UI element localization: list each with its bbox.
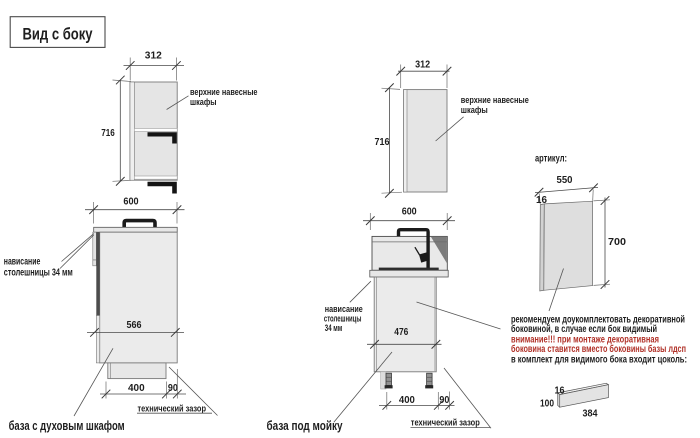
svg-text:550: 550	[557, 174, 573, 186]
svg-text:600: 600	[402, 207, 417, 218]
svg-text:400: 400	[399, 395, 415, 406]
svg-text:шкафы: шкафы	[190, 97, 217, 108]
svg-text:база под мойку: база под мойку	[267, 419, 343, 433]
svg-text:в комплект для видимого бока в: в комплект для видимого бока входит цоко…	[511, 355, 687, 366]
svg-text:476: 476	[394, 327, 408, 338]
svg-text:600: 600	[123, 196, 139, 207]
svg-text:700: 700	[608, 236, 626, 248]
svg-text:шкафы: шкафы	[461, 105, 488, 116]
svg-text:566: 566	[127, 320, 142, 331]
svg-text:400: 400	[128, 383, 145, 394]
svg-text:артикул:: артикул:	[535, 154, 567, 165]
svg-text:Вид с боку: Вид с боку	[23, 26, 94, 44]
svg-text:312: 312	[415, 60, 430, 71]
svg-text:716: 716	[375, 137, 390, 148]
svg-text:технический зазор: технический зазор	[411, 418, 480, 429]
svg-text:16: 16	[555, 385, 565, 396]
svg-text:столешницы 34 мм: столешницы 34 мм	[4, 268, 73, 279]
svg-text:312: 312	[145, 50, 162, 61]
svg-text:34 мм: 34 мм	[325, 323, 343, 334]
svg-text:384: 384	[583, 408, 598, 419]
svg-text:90: 90	[168, 383, 178, 394]
svg-text:100: 100	[540, 398, 554, 409]
svg-text:нависание: нависание	[4, 257, 41, 268]
svg-text:90: 90	[439, 395, 449, 406]
svg-text:боковина ставится вместо боков: боковина ставится вместо боковины базы л…	[511, 344, 686, 355]
svg-text:технический зазор: технический зазор	[138, 403, 207, 414]
svg-text:716: 716	[101, 128, 115, 139]
svg-text:база с духовым шкафом: база с духовым шкафом	[9, 419, 125, 433]
